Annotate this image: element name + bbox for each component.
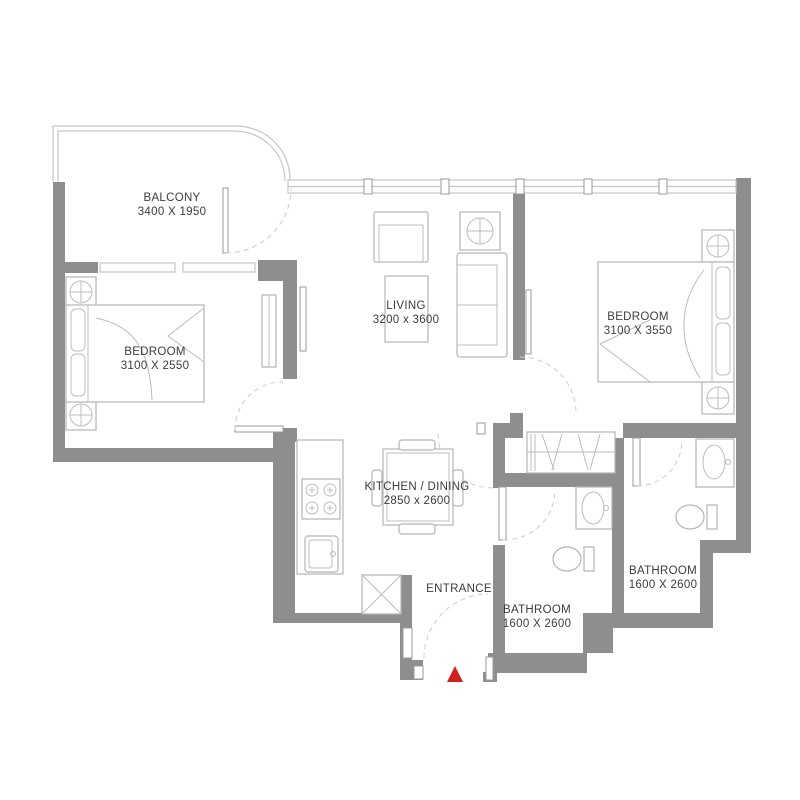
window-bedroom-left [100, 263, 255, 272]
stove-icon [302, 479, 340, 519]
room-label-bathroom-left: BATHROOM 1600 X 2600 [457, 604, 617, 631]
toilet-icon [676, 505, 717, 529]
window-band-top [288, 179, 736, 194]
balcony-railing [53, 126, 290, 182]
closet [527, 432, 615, 473]
side-table-lamp-icon [460, 212, 500, 250]
room-label-bathroom-right: BATHROOM 1600 X 2600 [583, 565, 743, 592]
nightstand-lamp-icon [66, 277, 96, 307]
kitchen-sink-icon [305, 536, 338, 572]
armchair [374, 212, 428, 262]
room-label-kitchen-dining: KITCHEN / DINING 2850 x 2600 [337, 481, 497, 508]
nightstand-lamp-icon [702, 230, 734, 262]
bathroom-left-door [499, 487, 555, 540]
bedroom-right-door [520, 290, 576, 413]
nightstand-lamp-icon [66, 400, 96, 430]
floor-plan-drawing [0, 0, 800, 800]
washbasin-icon [696, 439, 734, 487]
room-label-balcony: BALCONY 3400 X 1950 [92, 192, 252, 219]
room-label-bedroom-right: BEDROOM 3100 X 3550 [558, 311, 718, 338]
wardrobe-left [262, 295, 276, 367]
nightstand-lamp-icon [702, 382, 734, 414]
room-label-living: LIVING 3200 x 3600 [326, 300, 486, 327]
room-label-entrance: ENTRANCE [379, 583, 539, 597]
washbasin-icon [576, 487, 612, 529]
room-label-bedroom-left: BEDROOM 3100 X 2550 [75, 346, 235, 373]
bathroom-right-door [633, 438, 682, 486]
floor-plan: BALCONY 3400 X 1950 BEDROOM 3100 X 2550 … [0, 0, 800, 800]
entrance-marker [447, 666, 463, 682]
